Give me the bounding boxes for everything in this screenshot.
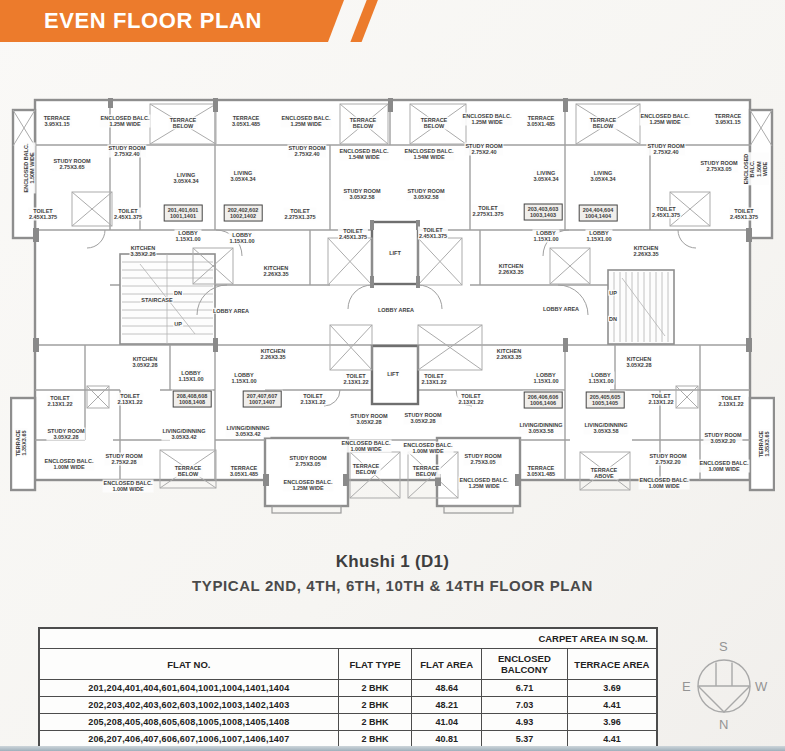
room-label: ENCLOSED BALC. 1.50M WIDE [23,143,36,194]
header-banner: EVEN FLOOR PLAN [0,0,350,42]
room-label: LOBBY 1.15X1.00 [177,370,204,383]
flat-number-box: 207,407,607 1007,1407 [243,391,282,408]
flat-table: CARPET AREA IN SQ.M.FLAT NO.FLAT TYPEFLA… [38,627,658,749]
room-label: LIVING 3.05X4.34 [229,170,256,183]
room-label: STUDY ROOM 3.05X2.20 [703,432,742,445]
room-label: TOILET 2.45X1.375 [338,228,368,241]
room-label: STUDY ROOM 2.75X2.40 [287,145,326,158]
project-title: Khushi 1 (D1) [0,552,785,572]
room-label: LIVING/DINNING 3.05X3.58 [583,422,628,435]
compass: S N E W [683,641,765,733]
compass-letter-w: W [755,679,767,694]
room-label: TOILET 2.275X1.375 [283,208,316,221]
floor-plan: TERRACE 3.95X1.15ENCLOSED BALC. 1.25M WI… [10,88,775,528]
room-label: LIFT [388,250,402,256]
room-label: TERRACE 1.35X3.65 [758,430,771,459]
flat-number-box: 206,406,606 1006,1406 [524,392,563,409]
table-cell: 2 BHK [338,731,412,748]
room-label: KITCHEN 2.26X3.35 [497,263,524,276]
flat-number-box: 208,408,608 1008,1408 [173,391,212,408]
floor-plan-labels: TERRACE 3.95X1.15ENCLOSED BALC. 1.25M WI… [10,88,775,528]
room-label: DN [173,290,183,296]
room-label: LOBBY AREA [212,308,250,314]
table-cell: 41.04 [412,714,482,731]
room-label: KITCHEN 2.26X3.35 [262,265,289,278]
table-cell: 48.21 [412,697,482,714]
room-label: ENCLOSED BALC. 1.00M WIDE [44,458,95,471]
flat-number-box: 202,402,602 1002,1402 [224,205,263,222]
room-label: TOILET 2.45X1.375 [113,208,143,221]
room-label: LIVING 3.05X4.34 [532,170,559,183]
room-label: ENCLOSED BALC. 1.54M WIDE [404,148,455,161]
table-row: 202,203,402,403,602,603,1002,1003,1402,1… [39,697,657,714]
flat-number-box: 201,401,601 1001,1401 [164,205,203,222]
column-header: FLAT AREA [412,649,482,680]
room-label: LIVING 3.05X4.34 [172,172,199,185]
room-label: TOILET 2.13X1.22 [299,393,326,406]
room-label: TOILET 2.45X1.375 [28,208,58,221]
room-label: KITCHEN 3.35X2.26 [129,245,156,258]
flat-number-box: 203,403,603 1003,1403 [524,204,563,221]
room-label: STUDY ROOM 3.05X2.28 [349,413,388,426]
room-label: ENCLOSED BALC. 1.54M WIDE [339,148,390,161]
table-cell: 4.41 [567,731,657,748]
table-cell: 48.64 [412,680,482,697]
room-label: TERRACE 3.05X1.485 [526,115,556,128]
room-label: STUDY ROOM 2.75X2.40 [464,143,503,156]
room-label: ENCLOSED BALC. 1.25M WIDE [100,115,151,128]
column-header: TERRACE AREA [567,649,657,680]
room-label: TOILET 2.275X1.375 [471,205,504,218]
room-label: TERRACE 3.05X1.485 [229,465,259,478]
table-cell: 206,207,406,407,606,607,1006,1007,1406,1… [39,731,338,748]
room-label: TOILET 2.13X1.22 [342,373,369,386]
room-label: TERRACE 3.95X1.15 [43,115,72,128]
room-label: TERRACE 3.05X1.485 [526,465,556,478]
table-cell: 2 BHK [338,680,412,697]
table-cell: 3.69 [567,680,657,697]
room-label: KITCHEN 3.05X2.28 [131,356,158,369]
room-label: TERRACE ABOVE [590,467,619,480]
room-label: LOBBY 1.15X1.00 [532,230,559,243]
room-label: ENCLOSED BALC. 1.00M WIDE [103,480,154,493]
table-cell: 7.03 [482,697,568,714]
floor-plan-subtitle: TYPICAL 2ND, 4TH, 6TH, 10TH & 14TH FLOOR… [0,577,785,594]
room-label: UP [608,290,618,296]
room-label: LOBBY 1.15X1.00 [174,230,201,243]
table-row: 205,208,405,408,605,608,1005,1008,1405,1… [39,714,657,731]
column-header: ENCLOSED BALCONY [482,649,568,680]
compass-letter-e: E [682,679,691,694]
room-label: KITCHEN 2.26X3.35 [495,348,522,361]
flat-number-box: 204,404,604 1004,1404 [579,205,618,222]
room-label: DN [608,316,618,322]
banner-title: EVEN FLOOR PLAN [0,0,350,42]
room-label: TERRACE BELOW [589,117,618,130]
room-label: TOILET 2.13X1.22 [457,393,484,406]
column-header: FLAT TYPE [338,649,412,680]
room-label: LIVING 3.05X4.34 [589,170,616,183]
room-label: TERRACE 1.35X3.65 [15,429,28,458]
compass-letter-n: N [719,717,728,732]
room-label: TERRACE BELOW [174,465,203,478]
room-label: LOBBY AREA [377,307,415,313]
brochure-page: EVEN FLOOR PLAN [0,0,785,751]
table-cell: 40.81 [412,731,482,748]
room-label: TOILET 2.13X1.22 [46,395,73,408]
room-label: STUDY ROOM 2.75X3.05 [699,160,738,173]
room-label: LOBBY 1.15X1.00 [585,230,612,243]
room-label: STUDY ROOM 3.05X2.58 [406,188,445,201]
room-label: STAIRCASE [140,297,173,303]
room-label: STUDY ROOM 2.75X2.28 [104,453,143,466]
room-label: LOBBY 1.15X1.00 [587,372,614,385]
table-row: 201,204,401,404,601,604,1001,1004,1401,1… [39,680,657,697]
room-label: TERRACE BELOW [169,117,198,130]
room-label: TOILET 2.13X1.22 [420,373,447,386]
room-label: LIVING/DINNING 3.05X3.58 [518,422,563,435]
room-label: STUDY ROOM 2.75X2.20 [648,453,687,466]
room-label: TERRACE BELOW [412,465,441,478]
room-label: KITCHEN 2.26X3.35 [259,348,286,361]
room-label: STUDY ROOM 2.75X3.65 [52,158,91,171]
table-header-row: FLAT NO.FLAT TYPEFLAT AREAENCLOSED BALCO… [39,649,657,680]
room-label: ENCLOSED BALC. 1.00M WIDE [341,440,392,453]
room-label: ENCLOSED BALC. 1.25M WIDE [640,113,691,126]
room-label: LIFT [386,371,400,377]
room-label: TOILET 2.45X1.375 [418,227,448,240]
room-label: STUDY ROOM 2.75X3.05 [463,453,502,466]
room-label: TERRACE 3.05X1.485 [231,115,261,128]
room-label: KITCHEN 2.26X3.35 [632,245,659,258]
table-cell: 2 BHK [338,714,412,731]
banner-stripe-decoration [348,0,382,42]
room-label: LOBBY 1.15X1.00 [532,372,559,385]
room-label: LOBBY AREA [542,306,580,312]
room-label: TERRACE BELOW [349,117,378,130]
room-label: TERRACE BELOW [420,117,449,130]
compass-letter-s: S [719,639,728,654]
table-cell: 205,208,405,408,605,608,1005,1008,1405,1… [39,714,338,731]
table-cell: 201,204,401,404,601,604,1001,1004,1401,1… [39,680,338,697]
room-label: TERRACE 3.95X1.15 [714,113,743,126]
table-row: 206,207,406,407,606,607,1006,1007,1406,1… [39,731,657,748]
room-label: ENCLOSED BALC. 1.00M WIDE [699,460,750,473]
room-label: TOILET 2.45X1.375 [651,206,681,219]
table-cell: 4.41 [567,697,657,714]
room-label: TOILET 2.45X1.375 [729,208,759,221]
room-label: ENCLOSED BALC. 1.00M WIDE [403,442,454,455]
room-label: TOILET 2.13X1.22 [717,395,744,408]
room-label: STUDY ROOM 3.05X2.58 [342,188,381,201]
room-label: ENCLOSED BALC. 1.25M WIDE [462,113,513,126]
room-label: LIVING/DINNING 3.05X3.42 [225,425,270,438]
room-label: ENCLOSED BALC. 1.50M WIDE [743,153,769,186]
photo-edge-strip [0,746,785,751]
room-label: ENCLOSED BALC. 1.25M WIDE [459,477,510,490]
column-header: FLAT NO. [39,649,338,680]
room-label: STUDY ROOM 3.05X2.28 [403,412,442,425]
table-cell: 202,203,402,403,602,603,1002,1003,1402,1… [39,697,338,714]
carpet-area-note: CARPET AREA IN SQ.M. [39,628,657,649]
room-label: ENCLOSED BALC. 1.00M WIDE [639,477,690,490]
room-label: KITCHEN 3.05X2.28 [625,356,652,369]
room-label: ENCLOSED BALC. 1.25M WIDE [281,115,332,128]
room-label: STUDY ROOM 2.75X2.40 [646,143,685,156]
room-label: LIVING/DINNING 3.05X3.42 [161,428,206,441]
room-label: TOILET 2.13X1.22 [116,393,143,406]
room-label: TERRACE BELOW [352,463,381,476]
table-cell: 3.96 [567,714,657,731]
room-label: STUDY ROOM 2.75X3.05 [288,455,327,468]
room-label: STUDY ROOM 2.75X2.40 [107,145,146,158]
table-cell: 4.93 [482,714,568,731]
room-label: STUDY ROOM 3.05X2.28 [46,428,85,441]
room-label: UP [173,321,183,327]
table-cell: 2 BHK [338,697,412,714]
title-block: Khushi 1 (D1) TYPICAL 2ND, 4TH, 6TH, 10T… [0,552,785,594]
flat-number-box: 205,405,605 1005,1405 [586,392,625,409]
table-cell: 5.37 [482,731,568,748]
table-cell: 6.71 [482,680,568,697]
room-label: TOILET 2.13X1.22 [647,393,674,406]
room-label: LOBBY 1.15X1.00 [228,232,255,245]
room-label: LOBBY 1.15X1.00 [230,372,257,385]
room-label: ENCLOSED BALC. 1.25M WIDE [283,479,334,492]
